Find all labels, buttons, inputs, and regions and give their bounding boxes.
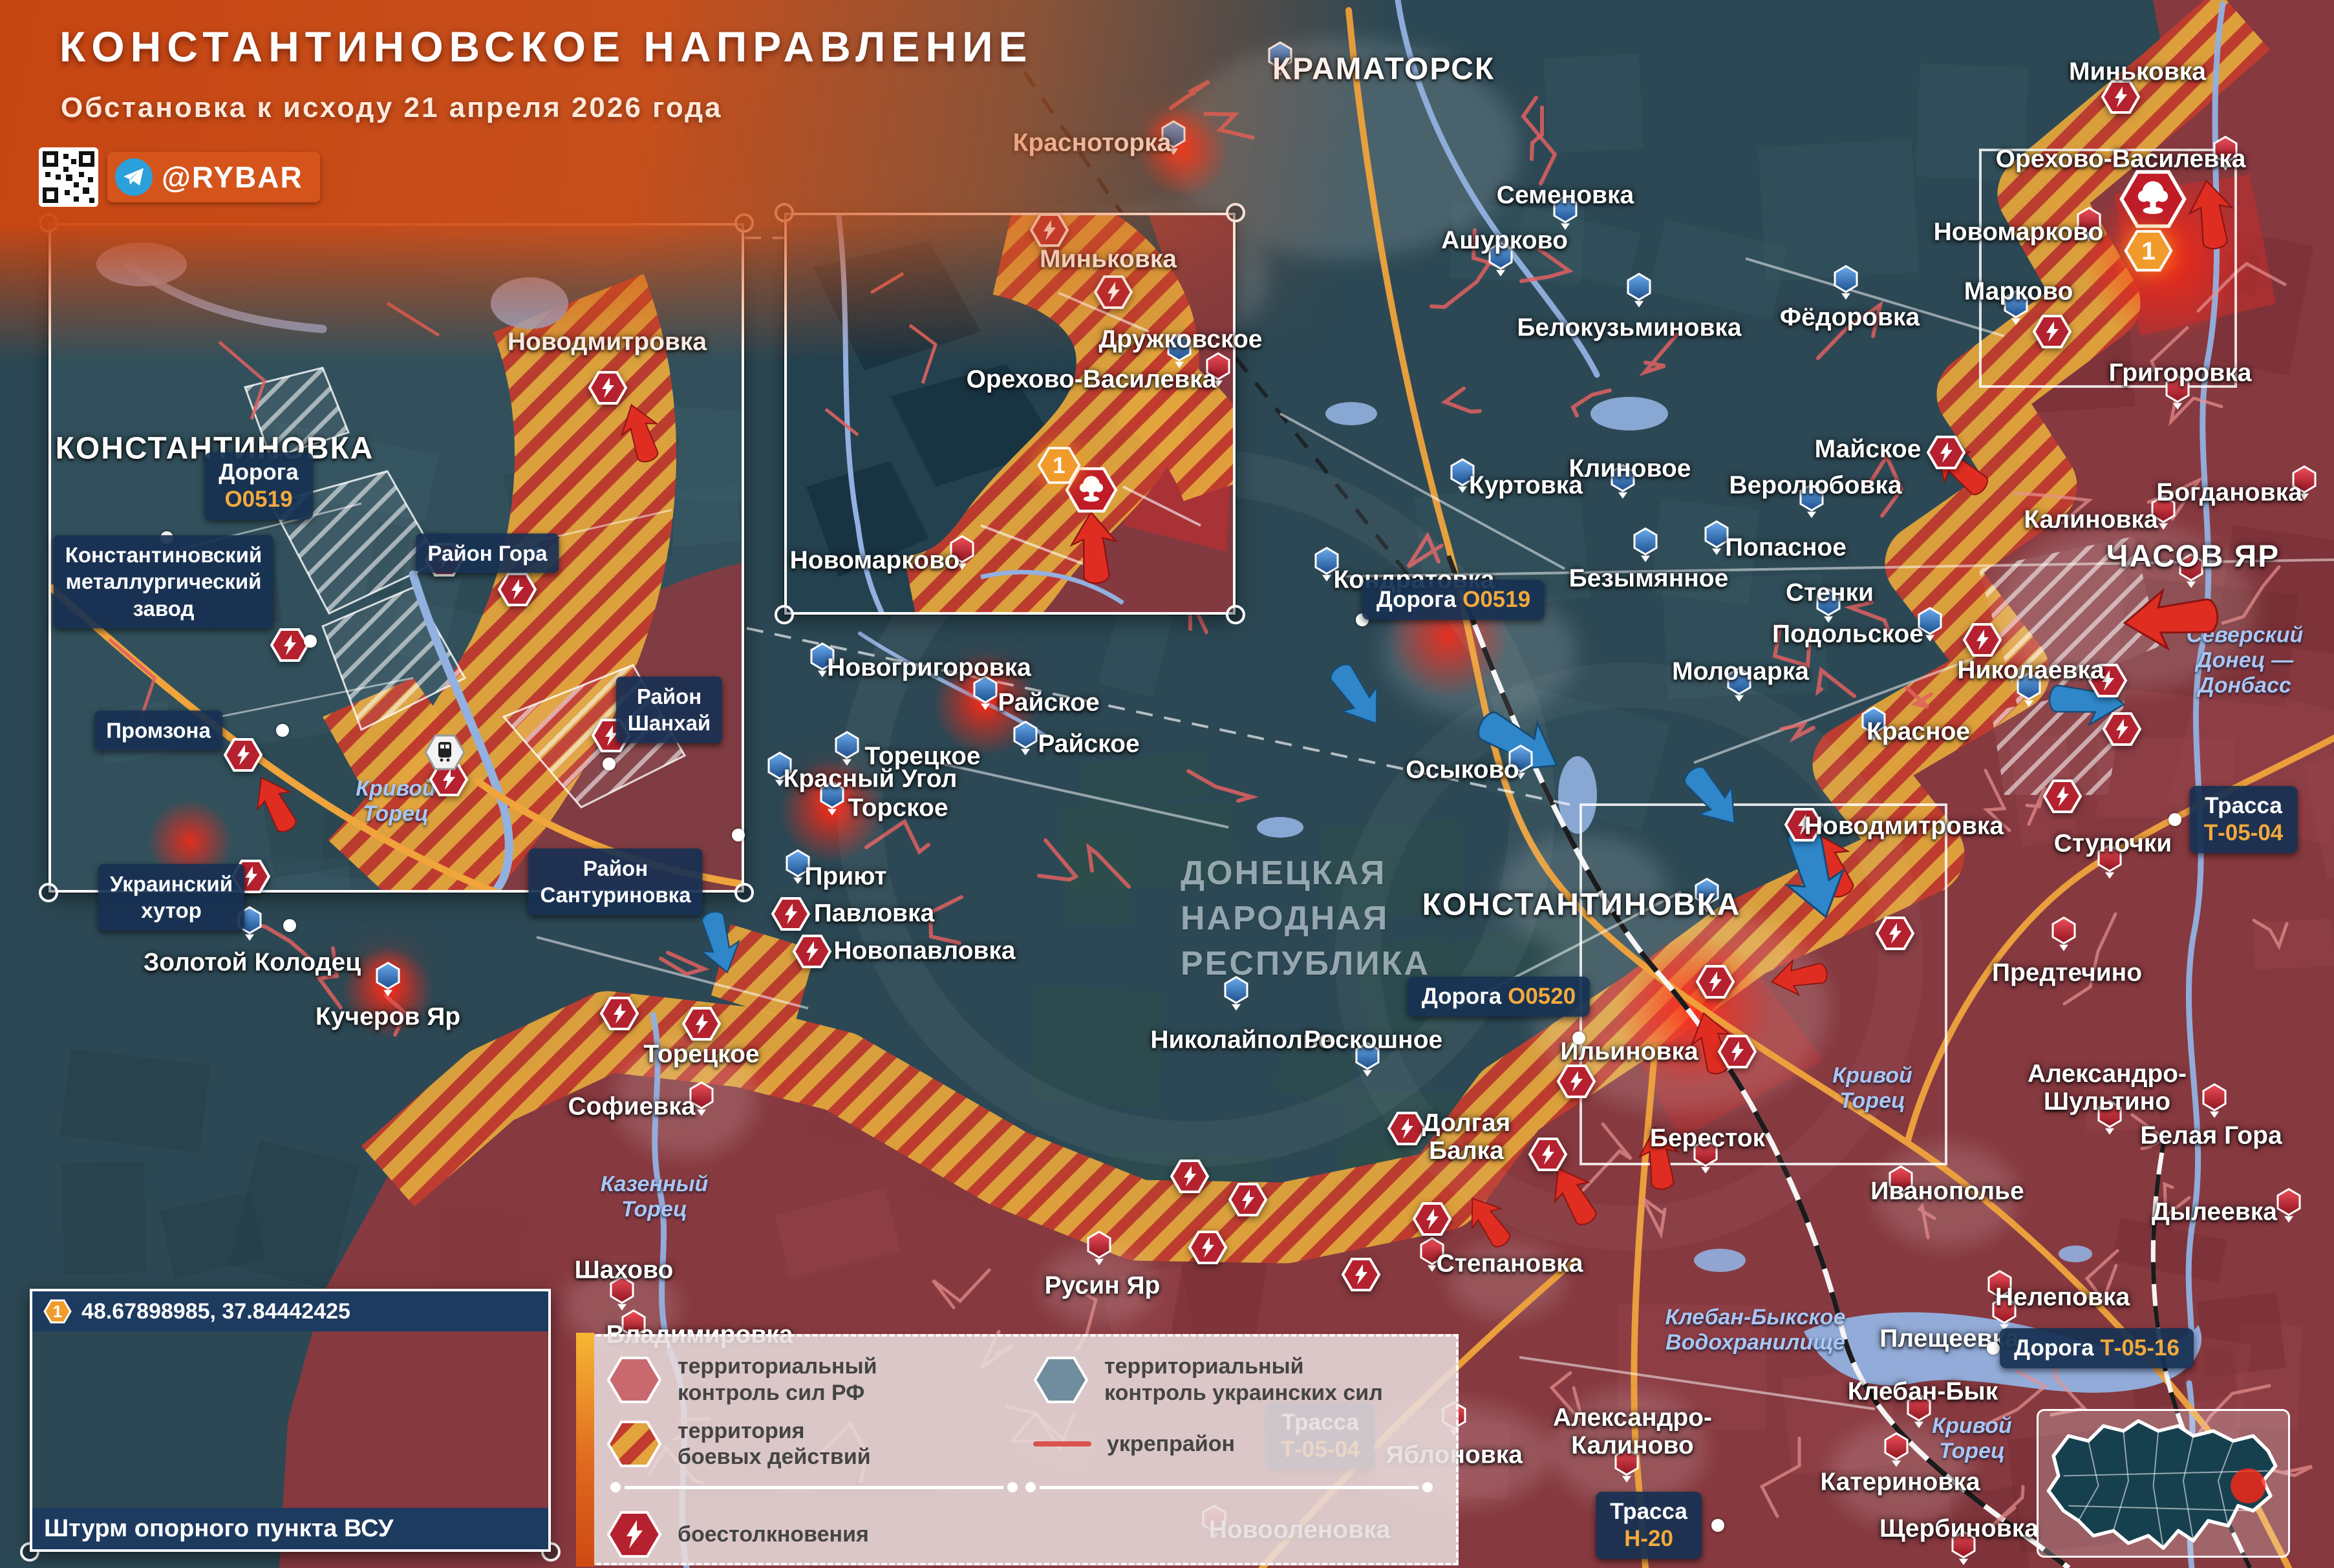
inset-konstantinovka-city <box>48 223 744 893</box>
ukraine-minimap <box>2037 1409 2290 1558</box>
minimap-donbass-glow <box>2231 1468 2265 1503</box>
video-badge-one: 1 <box>43 1295 72 1328</box>
page-title: КОНСТАНТИНОВСКОЕ НАПРАВЛЕНИЕ <box>59 22 1033 71</box>
dnr-watermark: ДОНЕЦКАЯНАРОДНАЯРЕСПУБЛИКА <box>1181 851 1430 987</box>
legend-clash-icon <box>606 1507 662 1562</box>
legend-ua-hex-icon <box>1033 1355 1089 1404</box>
telegram-channel-chip[interactable]: @RYBAR <box>107 152 320 202</box>
svg-text:1: 1 <box>53 1302 62 1321</box>
page-subtitle: Обстановка к исходу 21 апреля 2026 года <box>61 92 723 124</box>
qr-code <box>39 147 98 207</box>
inset-orekhovo-vasilevka <box>784 213 1236 615</box>
video-frame[interactable] <box>32 1331 548 1508</box>
legend-clash-label: боестолкновения <box>678 1521 869 1548</box>
legend-rf-label: территориальный контроль сил РФ <box>678 1353 877 1406</box>
legend-accent-bar <box>576 1333 594 1567</box>
video-caption: Штурм опорного пункта ВСУ <box>44 1515 394 1543</box>
telegram-icon <box>115 158 153 196</box>
video-coordinates: 48.67898985, 37.84442425 <box>81 1299 350 1324</box>
map-legend: территориальный контроль сил РФ территор… <box>581 1334 1459 1565</box>
channel-name: @RYBAR <box>162 160 303 195</box>
legend-combat-label: территория боевых действий <box>678 1418 871 1471</box>
situation-map: КОНСТАНТИНОВСКОЕ НАПРАВЛЕНИЕ Обстановка … <box>0 0 2334 1568</box>
legend-combat-hex-icon <box>606 1419 662 1468</box>
legend-fortline-icon <box>1033 1441 1091 1446</box>
legend-rf-hex-icon <box>606 1355 662 1404</box>
legend-ua-label: территориальный контроль украинских сил <box>1104 1353 1383 1406</box>
video-inset[interactable]: 1 48.67898985, 37.84442425 Штурм опорног… <box>30 1289 551 1552</box>
legend-fort-label: укрепрайон <box>1107 1431 1235 1457</box>
